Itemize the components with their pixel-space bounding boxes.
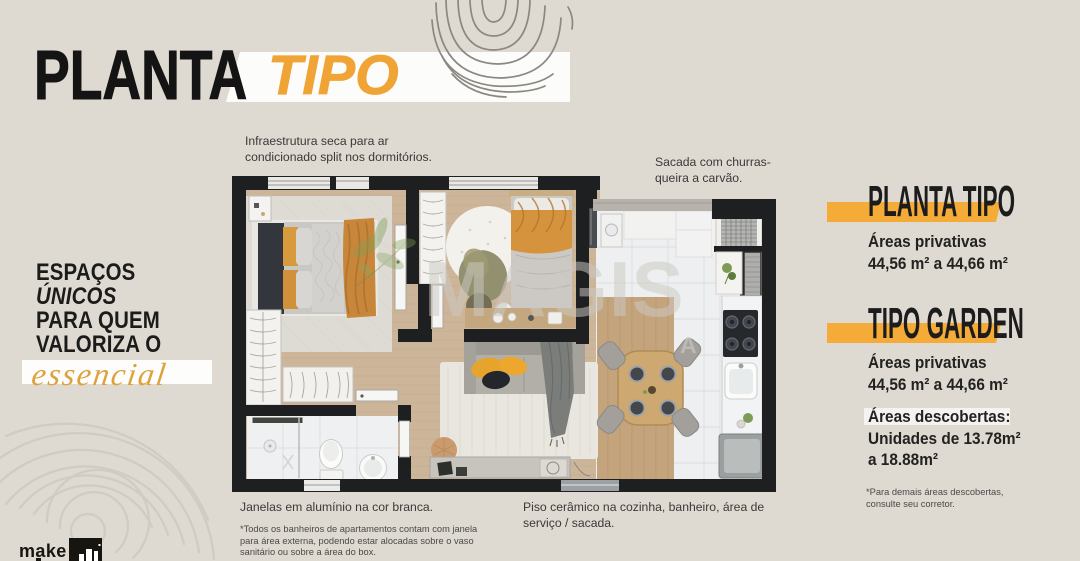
svg-text:A: A: [680, 332, 697, 358]
svg-text:MAGIS: MAGIS: [424, 245, 685, 333]
